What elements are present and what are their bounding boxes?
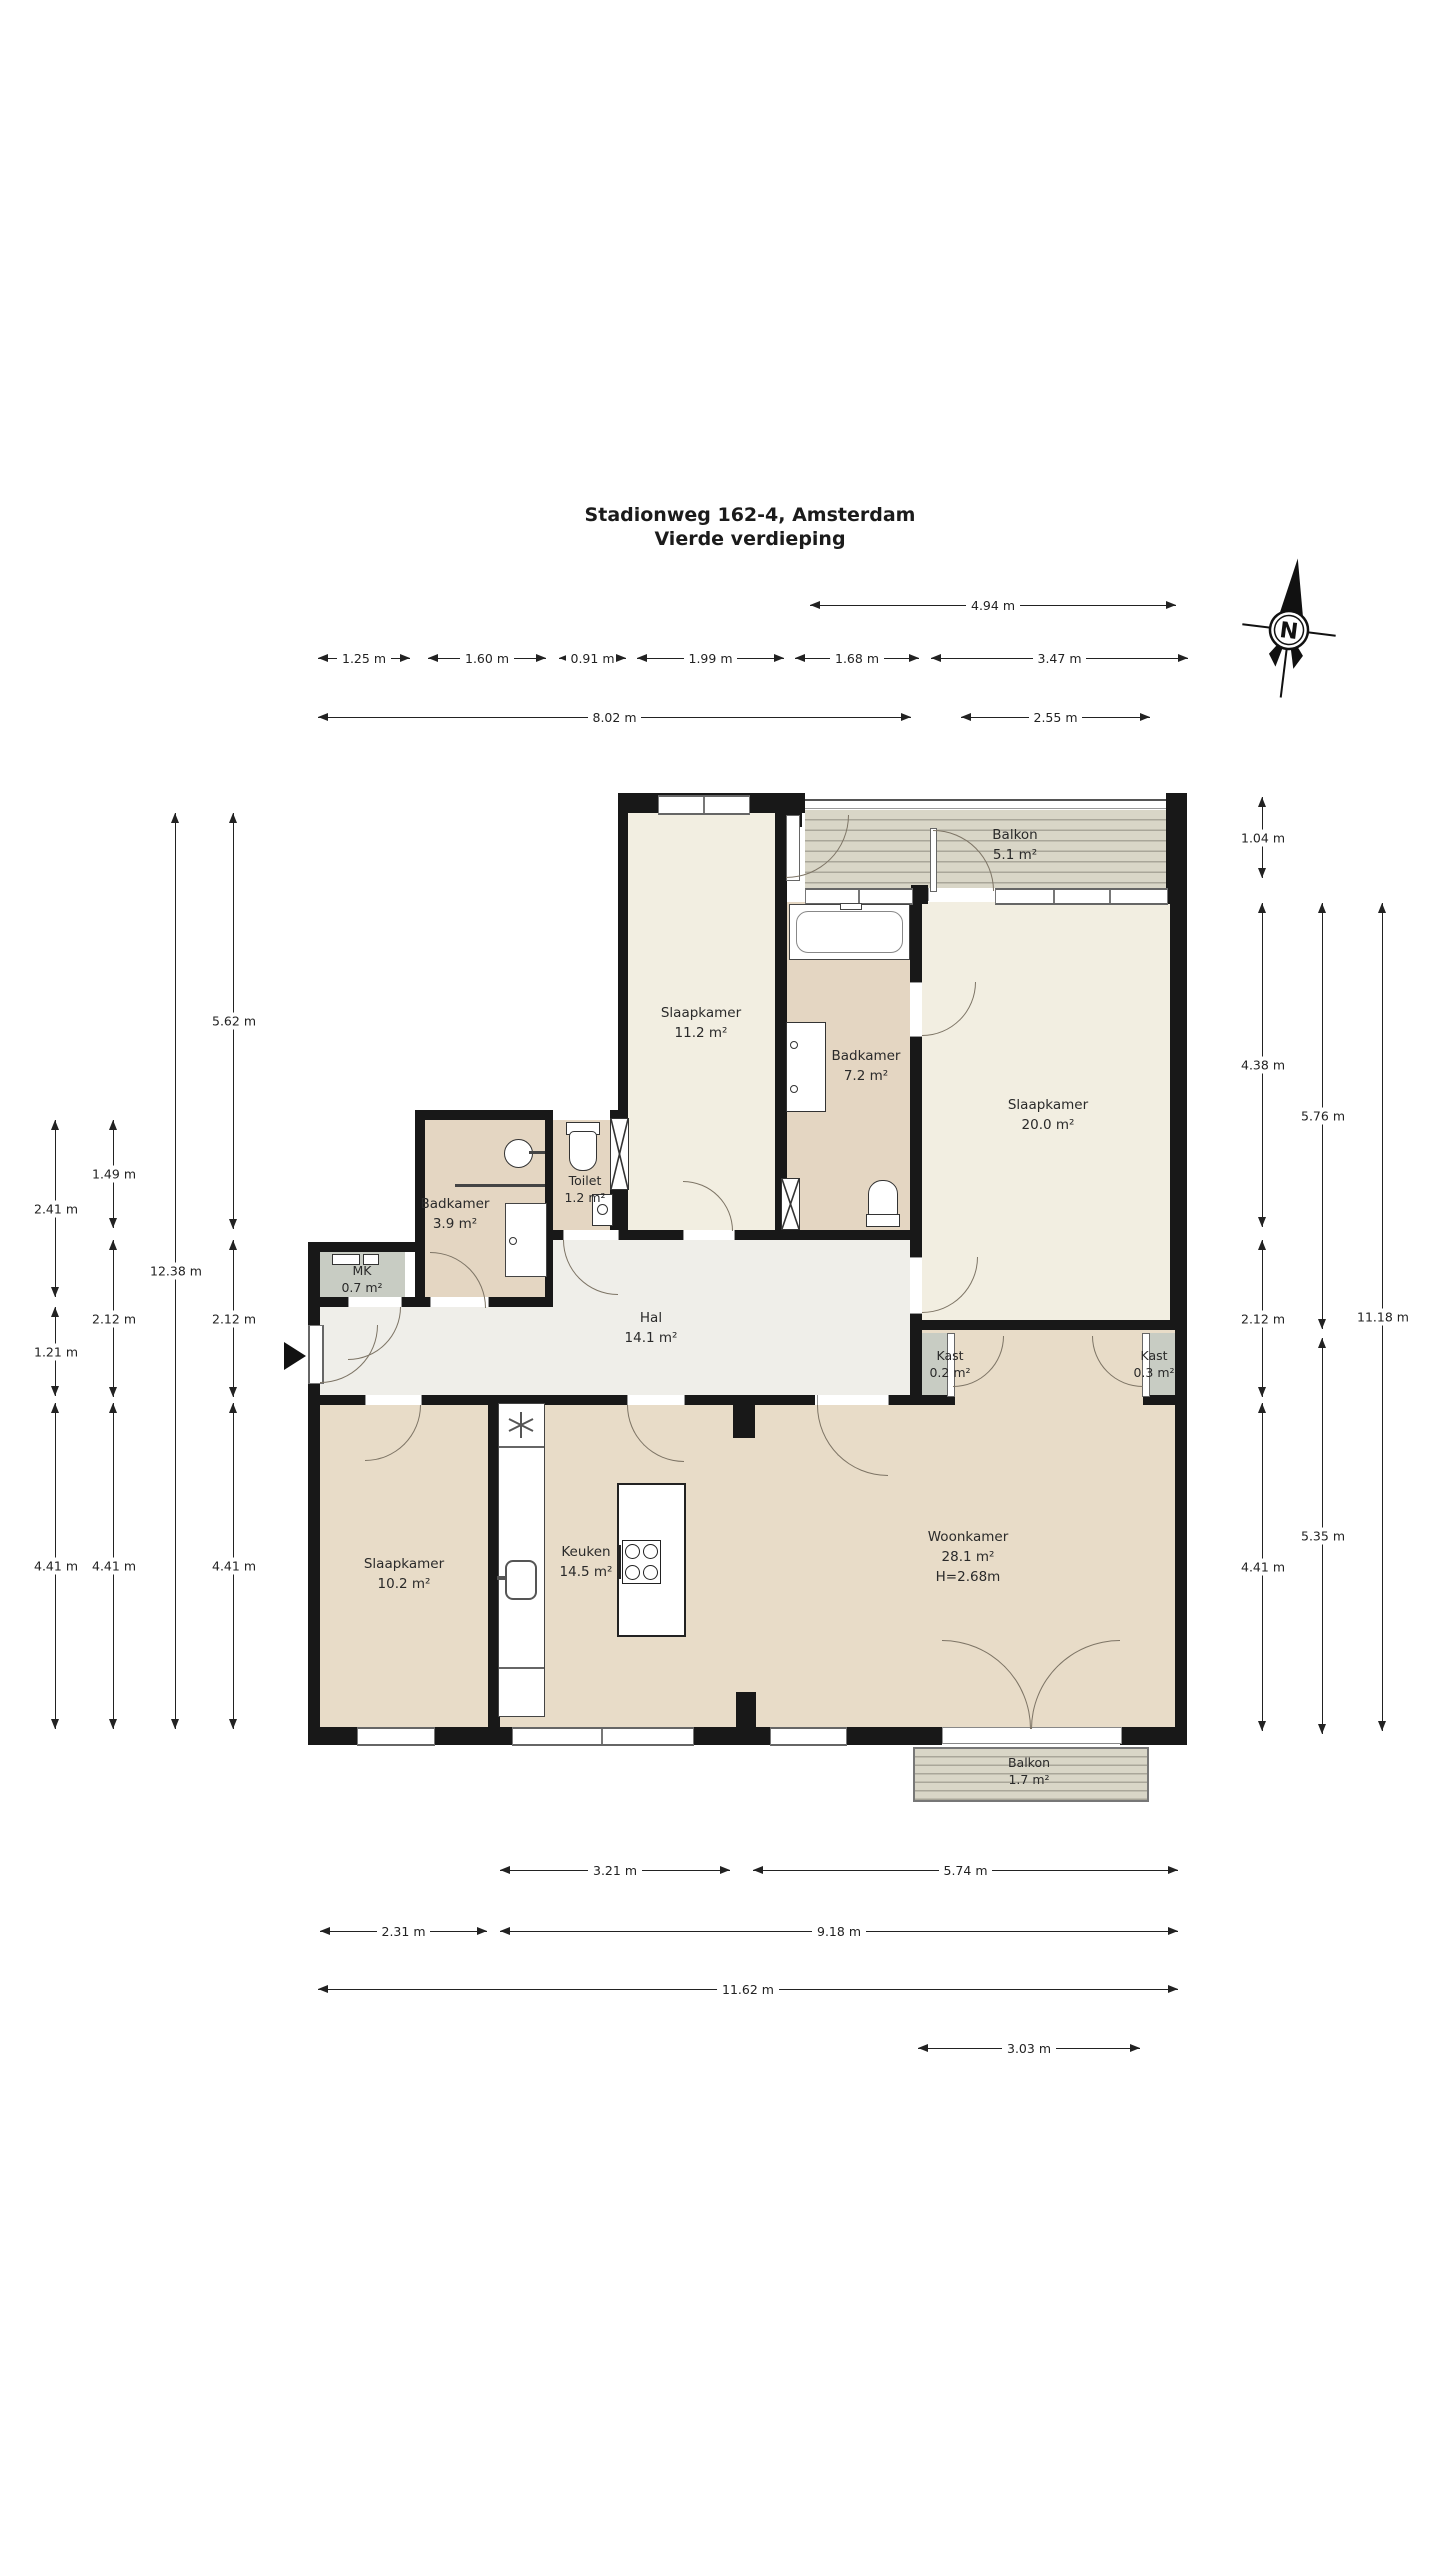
label-kast-02: Kast0.2 m²: [929, 1347, 970, 1381]
door-opening-toilet: [563, 1230, 619, 1240]
dim-bottom-5_74: 5.74 m: [753, 1870, 1178, 1871]
door-opening-woonkamer: [817, 1395, 889, 1405]
floorplan-page: Stadionweg 162-4, Amsterdam Vierde verdi…: [0, 0, 1440, 2560]
dim-top-1_99: 1.99 m: [637, 658, 784, 659]
wall: [308, 1242, 415, 1252]
wall: [1166, 793, 1187, 904]
kitchen-counter-icon: [498, 1403, 545, 1717]
wall: [910, 902, 922, 982]
compass-n-label: N: [1278, 618, 1299, 645]
wall: [733, 1230, 920, 1240]
wall: [553, 1230, 563, 1240]
wall: [1120, 1727, 1187, 1745]
label-slaapkamer-10: Slaapkamer10.2 m²: [364, 1554, 444, 1594]
entrance-arrow-icon: [284, 1342, 306, 1370]
dim-bottom-9_18: 9.18 m: [500, 1931, 1178, 1932]
dim-right-11_18: 11.18 m: [1382, 903, 1383, 1731]
plan-title-floor: Vierde verdieping: [380, 527, 1120, 551]
dim-left-2_41: 2.41 m: [55, 1120, 56, 1297]
dim-top-1_68: 1.68 m: [795, 658, 919, 659]
label-badkamer-3: Badkamer3.9 m²: [421, 1194, 490, 1234]
room-hal: [320, 1307, 920, 1395]
label-hal: Hal14.1 m²: [625, 1308, 678, 1348]
dim-top-0_91: 0.91 m: [559, 658, 626, 659]
window: [995, 888, 1168, 905]
dim-right-4_38: 4.38 m: [1262, 903, 1263, 1227]
dim-left-4_41c: 4.41 m: [233, 1403, 234, 1729]
wall: [320, 1395, 365, 1405]
door-opening-slaapkamer-10: [365, 1395, 422, 1405]
label-kast-03: Kast0.3 m²: [1133, 1347, 1174, 1381]
dim-right-4_41: 4.41 m: [1262, 1403, 1263, 1731]
dim-top-8_02: 8.02 m: [318, 717, 911, 718]
window: [658, 795, 750, 815]
toilet-tank-icon: [866, 1214, 900, 1227]
dim-top-1_25: 1.25 m: [318, 658, 410, 659]
wall: [1170, 902, 1187, 1330]
shaft-x-icon: [781, 1178, 800, 1230]
wall: [308, 1242, 320, 1325]
dim-left-5_62: 5.62 m: [233, 813, 234, 1229]
wall: [683, 1395, 815, 1405]
label-balkon-top: Balkon5.1 m²: [992, 825, 1037, 865]
door-opening-slaapkamer-11: [683, 1230, 735, 1240]
dim-bottom-2_31: 2.31 m: [320, 1931, 487, 1932]
dim-left-1_49: 1.49 m: [113, 1120, 114, 1228]
door-opening-slaapkamer-20: [910, 1257, 922, 1314]
window: [357, 1727, 435, 1746]
dim-bottom-3_21: 3.21 m: [500, 1870, 730, 1871]
balcony-railing: [805, 799, 1166, 809]
dim-bottom-11_62: 11.62 m: [318, 1989, 1178, 1990]
french-door-opening: [942, 1727, 1122, 1744]
label-balkon-bottom: Balkon1.7 m²: [1008, 1754, 1050, 1788]
dim-top-2_55: 2.55 m: [961, 717, 1150, 718]
dim-left-12_38: 12.38 m: [175, 813, 176, 1729]
label-slaapkamer-20: Slaapkamer20.0 m²: [1008, 1095, 1088, 1135]
wall: [415, 1110, 553, 1120]
dim-left-2_12a: 2.12 m: [113, 1240, 114, 1397]
dim-top-4_94: 4.94 m: [810, 605, 1176, 606]
wall: [920, 1320, 1187, 1330]
wall: [736, 1692, 756, 1727]
wall: [400, 1297, 430, 1307]
dim-right-1_04: 1.04 m: [1262, 797, 1263, 878]
label-woonkamer: Woonkamer28.1 m²H=2.68m: [928, 1527, 1009, 1587]
wall: [308, 1382, 320, 1727]
label-toilet: Toilet1.2 m²: [564, 1172, 605, 1206]
bathtub-icon: [789, 904, 910, 960]
plan-title: Stadionweg 162-4, Amsterdam Vierde verdi…: [380, 503, 1120, 551]
wall: [308, 1297, 348, 1307]
label-keuken: Keuken14.5 m²: [560, 1542, 613, 1582]
wall: [733, 1405, 755, 1438]
compass-north-icon: N: [1234, 556, 1344, 706]
wall: [433, 1727, 512, 1745]
label-mk: MK0.7 m²: [341, 1262, 382, 1296]
dim-top-3_47: 3.47 m: [931, 658, 1188, 659]
dim-right-2_12: 2.12 m: [1262, 1240, 1263, 1397]
label-badkamer-7: Badkamer7.2 m²: [832, 1046, 901, 1086]
radiator-icon: [786, 1022, 826, 1112]
dim-right-5_76: 5.76 m: [1322, 903, 1323, 1329]
dim-left-2_12b: 2.12 m: [233, 1240, 234, 1397]
door-opening-badkamer-7: [910, 982, 922, 1037]
door-opening-mk: [348, 1297, 402, 1307]
stove-icon: [622, 1540, 661, 1584]
vent-icon: [507, 1411, 535, 1439]
wall: [845, 1727, 942, 1745]
toilet-icon: [868, 1180, 898, 1218]
wall: [887, 1395, 920, 1405]
dim-top-1_60: 1.60 m: [428, 658, 546, 659]
dim-left-4_41b: 4.41 m: [113, 1403, 114, 1729]
dim-left-4_41a: 4.41 m: [55, 1403, 56, 1729]
wall: [487, 1297, 553, 1307]
wall: [910, 1035, 922, 1257]
wall: [617, 1230, 683, 1240]
shower-cabinet-icon: [505, 1203, 547, 1277]
kitchen-sink-icon: [505, 1560, 537, 1600]
door-opening-keuken: [627, 1395, 685, 1405]
toilet-icon: [569, 1131, 597, 1171]
label-slaapkamer-11: Slaapkamer11.2 m²: [661, 1003, 741, 1043]
kitchen-island-icon: [617, 1483, 686, 1637]
shower-divider: [455, 1184, 545, 1187]
wall: [692, 1727, 770, 1745]
dim-left-1_21: 1.21 m: [55, 1307, 56, 1396]
wall: [1175, 1330, 1187, 1745]
window: [512, 1727, 694, 1746]
window: [770, 1727, 847, 1746]
dim-bottom-3_03: 3.03 m: [918, 2048, 1140, 2049]
faucet-icon: [529, 1151, 545, 1154]
dim-right-5_35: 5.35 m: [1322, 1338, 1323, 1734]
wall: [308, 1727, 357, 1745]
shaft-x-icon: [610, 1118, 629, 1190]
plan-title-address: Stadionweg 162-4, Amsterdam: [380, 503, 1120, 527]
